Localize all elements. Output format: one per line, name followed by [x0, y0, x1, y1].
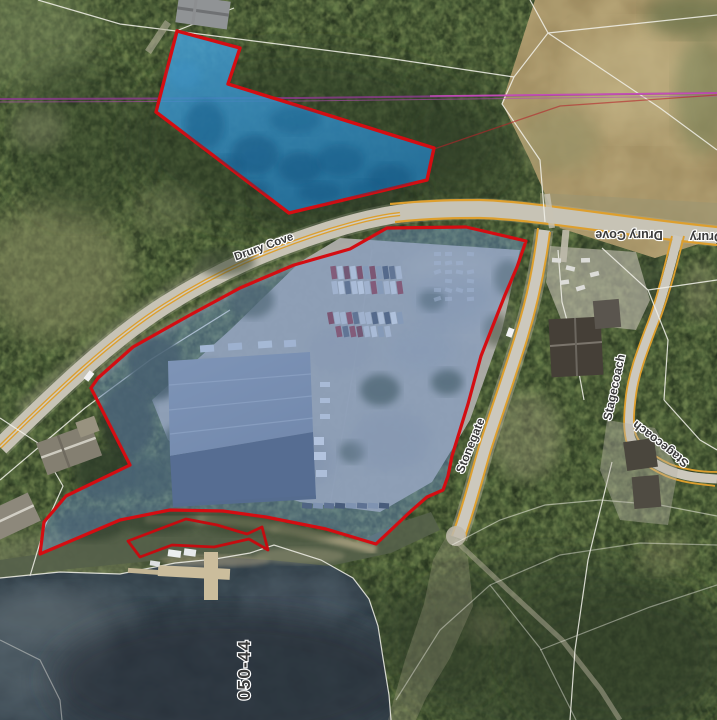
svg-text:Drury: Drury — [690, 230, 717, 244]
svg-text:Drury Cove: Drury Cove — [595, 228, 662, 242]
svg-text:050-44: 050-44 — [234, 640, 254, 701]
